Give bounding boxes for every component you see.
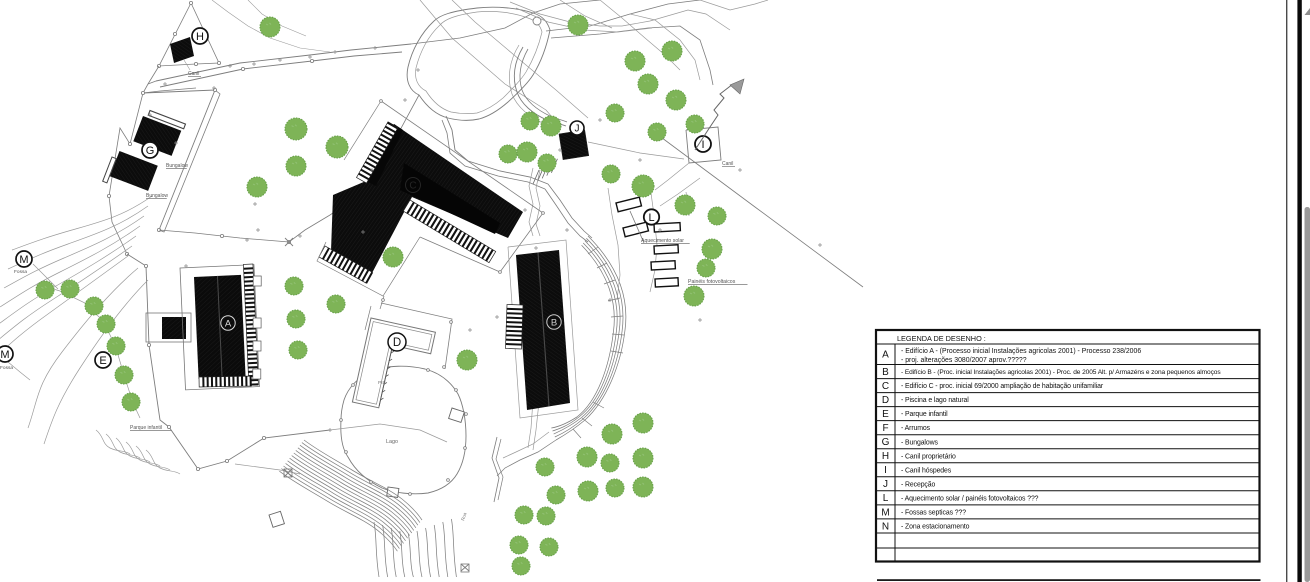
svg-text:PIS: PIS — [378, 380, 386, 386]
svg-text:LEGENDA DE DESENHO :: LEGENDA DE DESENHO : — [897, 334, 986, 343]
svg-text:C: C — [882, 381, 889, 392]
svg-text:D: D — [393, 337, 401, 349]
svg-text:Lago: Lago — [386, 439, 398, 445]
svg-text:- Piscina e lago natural: - Piscina e lago natural — [901, 397, 969, 404]
svg-text:Bungalow: Bungalow — [146, 193, 168, 199]
svg-text:J: J — [575, 124, 580, 135]
svg-text:- Aquecimento solar / painéis: - Aquecimento solar / painéis fotovoltai… — [901, 496, 1039, 503]
svg-text:I: I — [701, 139, 704, 151]
svg-text:Aquecimento solar: Aquecimento solar — [641, 238, 684, 244]
svg-text:H: H — [882, 451, 889, 462]
svg-text:- Recepção: - Recepção — [901, 481, 936, 488]
svg-text:Painéis fotovoltaicos: Painéis fotovoltaicos — [688, 279, 736, 285]
svg-text:- Fossas septicas ???: - Fossas septicas ??? — [901, 510, 966, 517]
svg-text:B: B — [882, 367, 889, 378]
svg-text:- Edifício A - (Processo inici: - Edifício A - (Processo inicial Instala… — [901, 348, 1141, 355]
svg-text:Parque infantil: Parque infantil — [130, 425, 162, 431]
svg-text:- Bungalows: - Bungalows — [901, 439, 938, 446]
svg-text:B: B — [551, 317, 557, 328]
svg-text:D: D — [882, 395, 889, 406]
svg-text:H: H — [196, 31, 204, 43]
svg-text:Canil: Canil — [188, 71, 199, 77]
svg-text:- Edifício C - proc. inicial 6: - Edifício C - proc. inicial 69/2000 amp… — [901, 383, 1104, 390]
svg-text:Fossa: Fossa — [0, 365, 13, 371]
svg-text:A: A — [882, 350, 889, 361]
svg-text:- Canil proprietário: - Canil proprietário — [901, 453, 956, 460]
svg-text:E: E — [882, 409, 889, 420]
svg-text:G: G — [146, 145, 155, 157]
svg-text:I: I — [884, 465, 887, 476]
svg-text:Canil: Canil — [722, 161, 733, 167]
svg-text:- Canil hóspedes: - Canil hóspedes — [901, 467, 952, 474]
svg-text:- Zona estacionamento: - Zona estacionamento — [901, 524, 970, 531]
svg-text:- Arrumos: - Arrumos — [901, 425, 931, 432]
svg-text:M: M — [19, 254, 28, 266]
svg-text:A: A — [225, 318, 232, 329]
svg-text:Fossa: Fossa — [14, 269, 27, 275]
svg-text:N: N — [882, 521, 889, 532]
svg-text:M: M — [881, 507, 889, 518]
svg-text:F: F — [882, 423, 888, 434]
svg-text:- proj. alterações 3080/2007: - proj. alterações 3080/2007 aprov.????? — [901, 357, 1027, 364]
svg-text:L: L — [648, 212, 654, 224]
svg-text:G: G — [882, 437, 890, 448]
svg-text:E: E — [99, 355, 106, 367]
svg-text:L: L — [883, 493, 889, 504]
svg-text:Bungalow: Bungalow — [166, 163, 188, 169]
svg-text:J: J — [883, 479, 888, 490]
svg-text:- Edifício B - (Proc. inicial: - Edifício B - (Proc. inicial Instalaçõe… — [901, 369, 1221, 376]
svg-text:M: M — [0, 349, 9, 361]
svg-text:C: C — [409, 181, 416, 192]
svg-text:- Parque infantil: - Parque infantil — [901, 411, 948, 418]
